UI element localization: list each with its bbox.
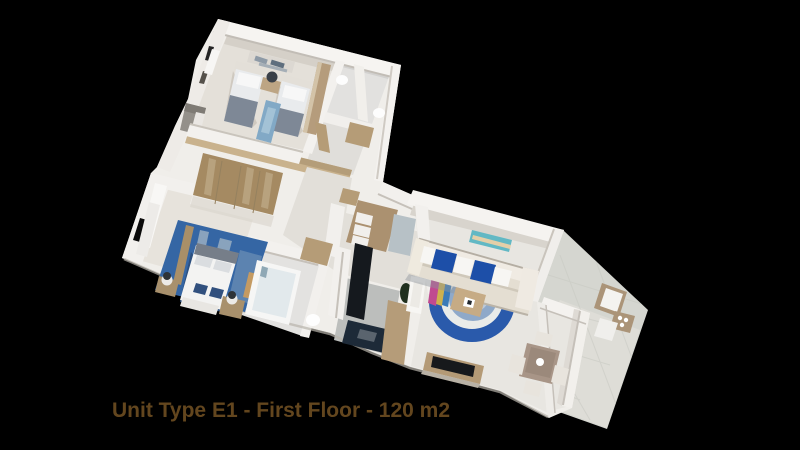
svg-text:Unit Type E1 - First Floor - 1: Unit Type E1 - First Floor - 120 m2 <box>112 399 450 422</box>
